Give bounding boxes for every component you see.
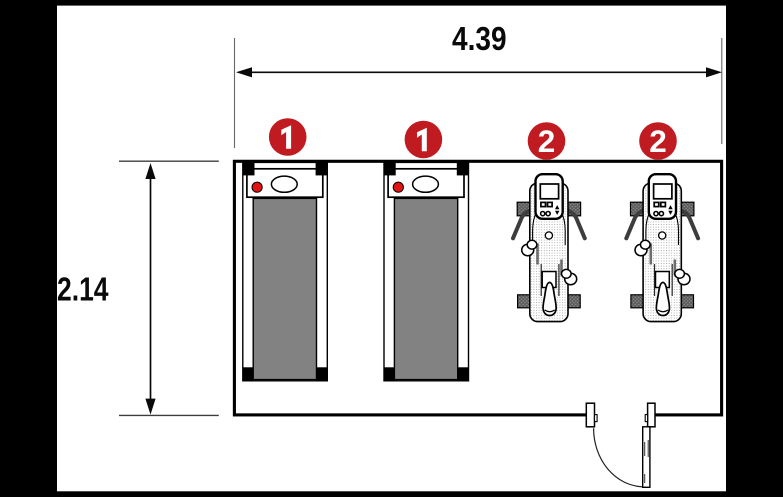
svg-text:4.39: 4.39 xyxy=(452,20,507,57)
svg-text:2.14: 2.14 xyxy=(57,271,109,308)
svg-text:2: 2 xyxy=(538,123,556,159)
svg-text:2: 2 xyxy=(649,123,667,159)
